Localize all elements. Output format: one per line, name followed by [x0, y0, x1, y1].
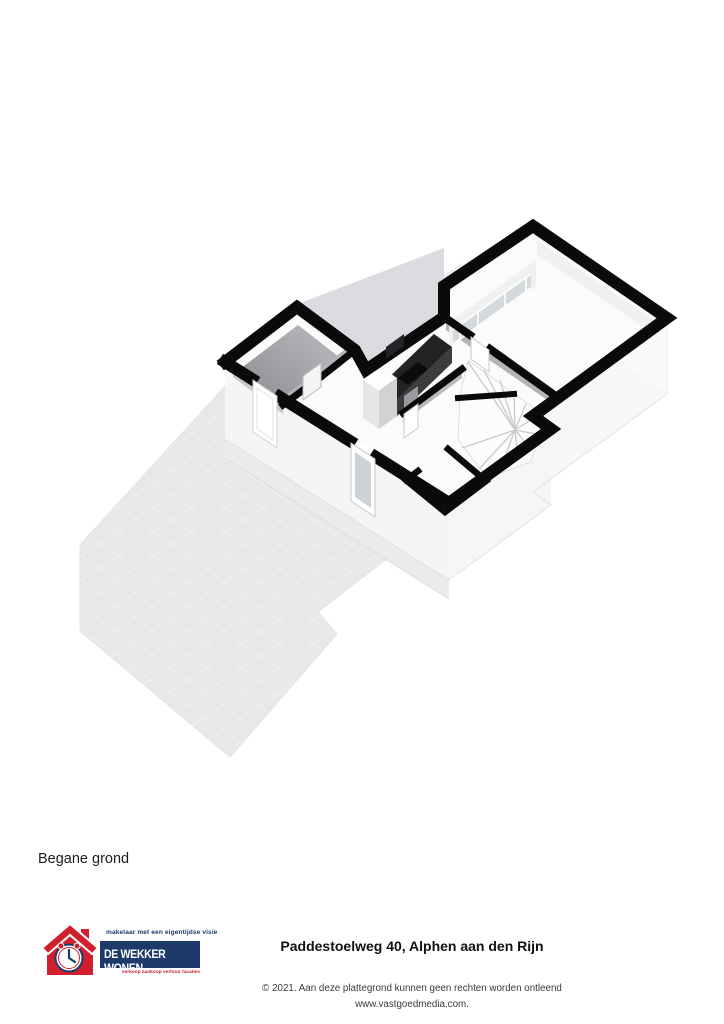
- page: Begane grond makelaar met een eigentijds…: [0, 0, 724, 1024]
- floor-label: Begane grond: [38, 851, 129, 867]
- logo-services: verkoop aankoop verhuur taxaties: [100, 970, 200, 975]
- logo-banner: DE WEKKER WONEN: [100, 941, 200, 968]
- copyright-line: © 2021. Aan deze plattegrond kunnen geen…: [162, 983, 662, 994]
- footer: makelaar met een eigentijdse visie DE WE…: [0, 912, 724, 1024]
- address-title: Paddestoelweg 40, Alphen aan den Rijn: [212, 938, 612, 954]
- floorplan-3d: [0, 0, 724, 1024]
- website-line: www.vastgoedmedia.com.: [162, 999, 662, 1010]
- logo-tagline: makelaar met een eigentijdse visie: [106, 929, 238, 936]
- agency-logo: makelaar met een eigentijdse visie DE WE…: [40, 918, 210, 988]
